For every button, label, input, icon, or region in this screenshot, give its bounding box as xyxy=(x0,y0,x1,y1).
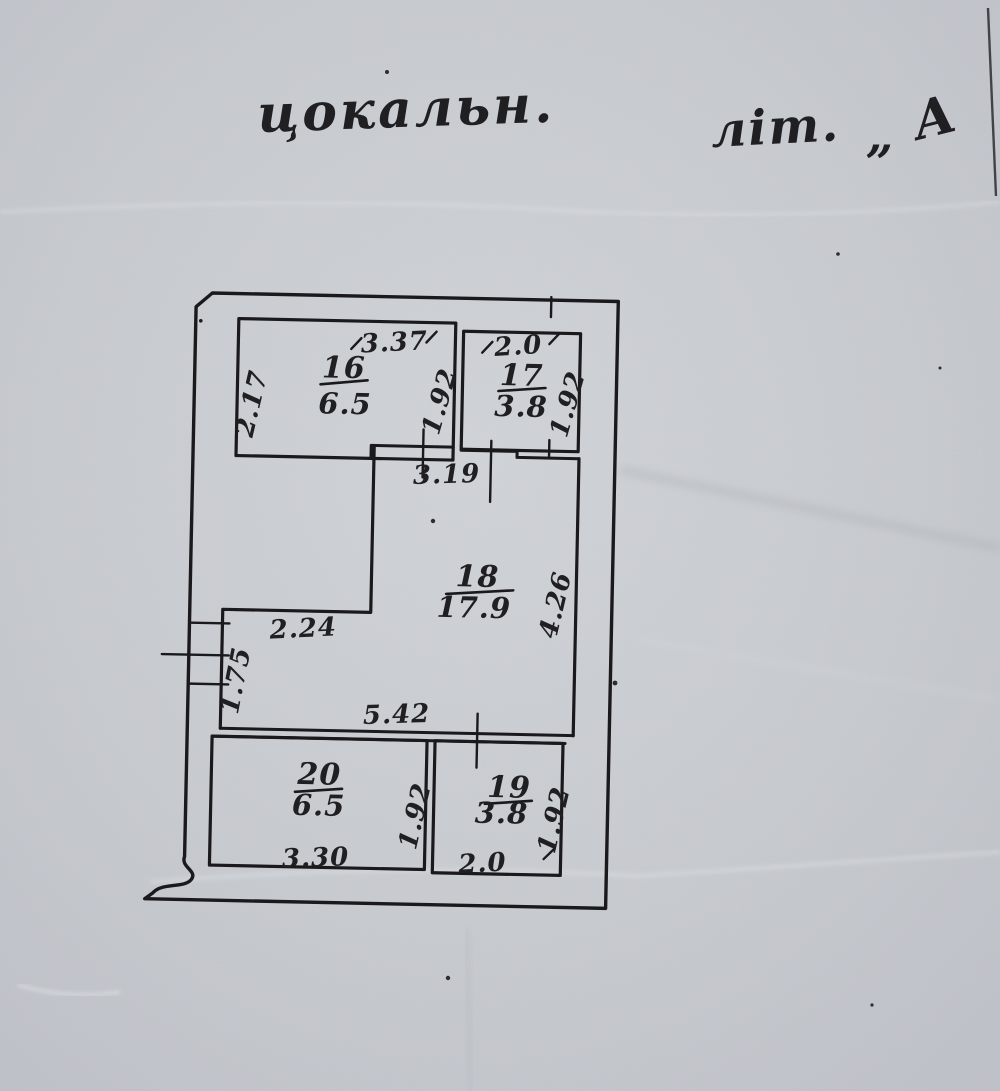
scanned-floor-plan-page: цокальн. літ. „ А xyxy=(0,0,1000,1091)
floor-plan-drawing: цокальн. літ. „ А xyxy=(0,0,1000,1091)
scan-grain-overlay xyxy=(0,0,1000,1091)
